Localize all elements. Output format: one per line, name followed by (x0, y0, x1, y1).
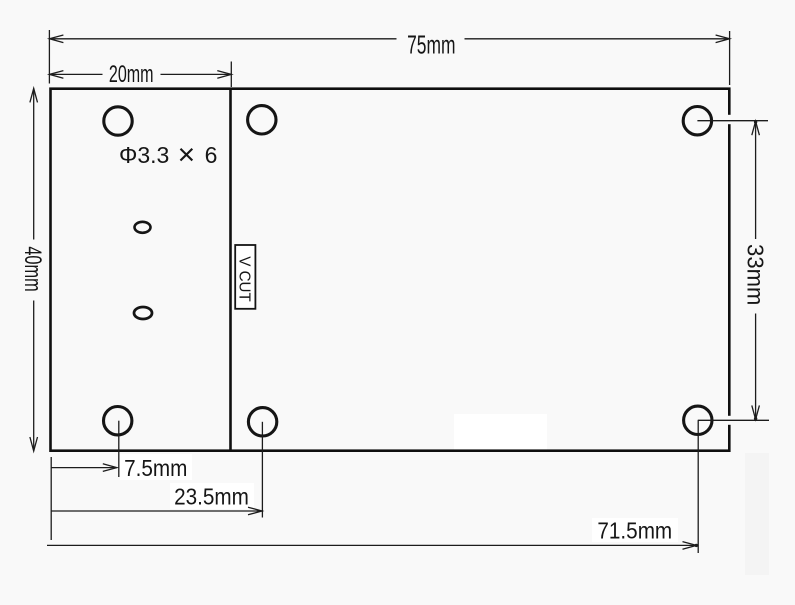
svg-text:7.5mm: 7.5mm (124, 455, 187, 481)
svg-text:23.5mm: 23.5mm (174, 484, 249, 510)
svg-text:20mm: 20mm (109, 62, 154, 88)
svg-text:75mm: 75mm (407, 30, 455, 59)
svg-text:V CUT: V CUT (235, 256, 252, 302)
svg-text:71.5mm: 71.5mm (597, 517, 672, 543)
svg-text:Φ3.3×6: Φ3.3×6 (119, 138, 217, 171)
svg-text:40mm: 40mm (19, 246, 46, 291)
svg-text:33mm: 33mm (742, 244, 768, 305)
